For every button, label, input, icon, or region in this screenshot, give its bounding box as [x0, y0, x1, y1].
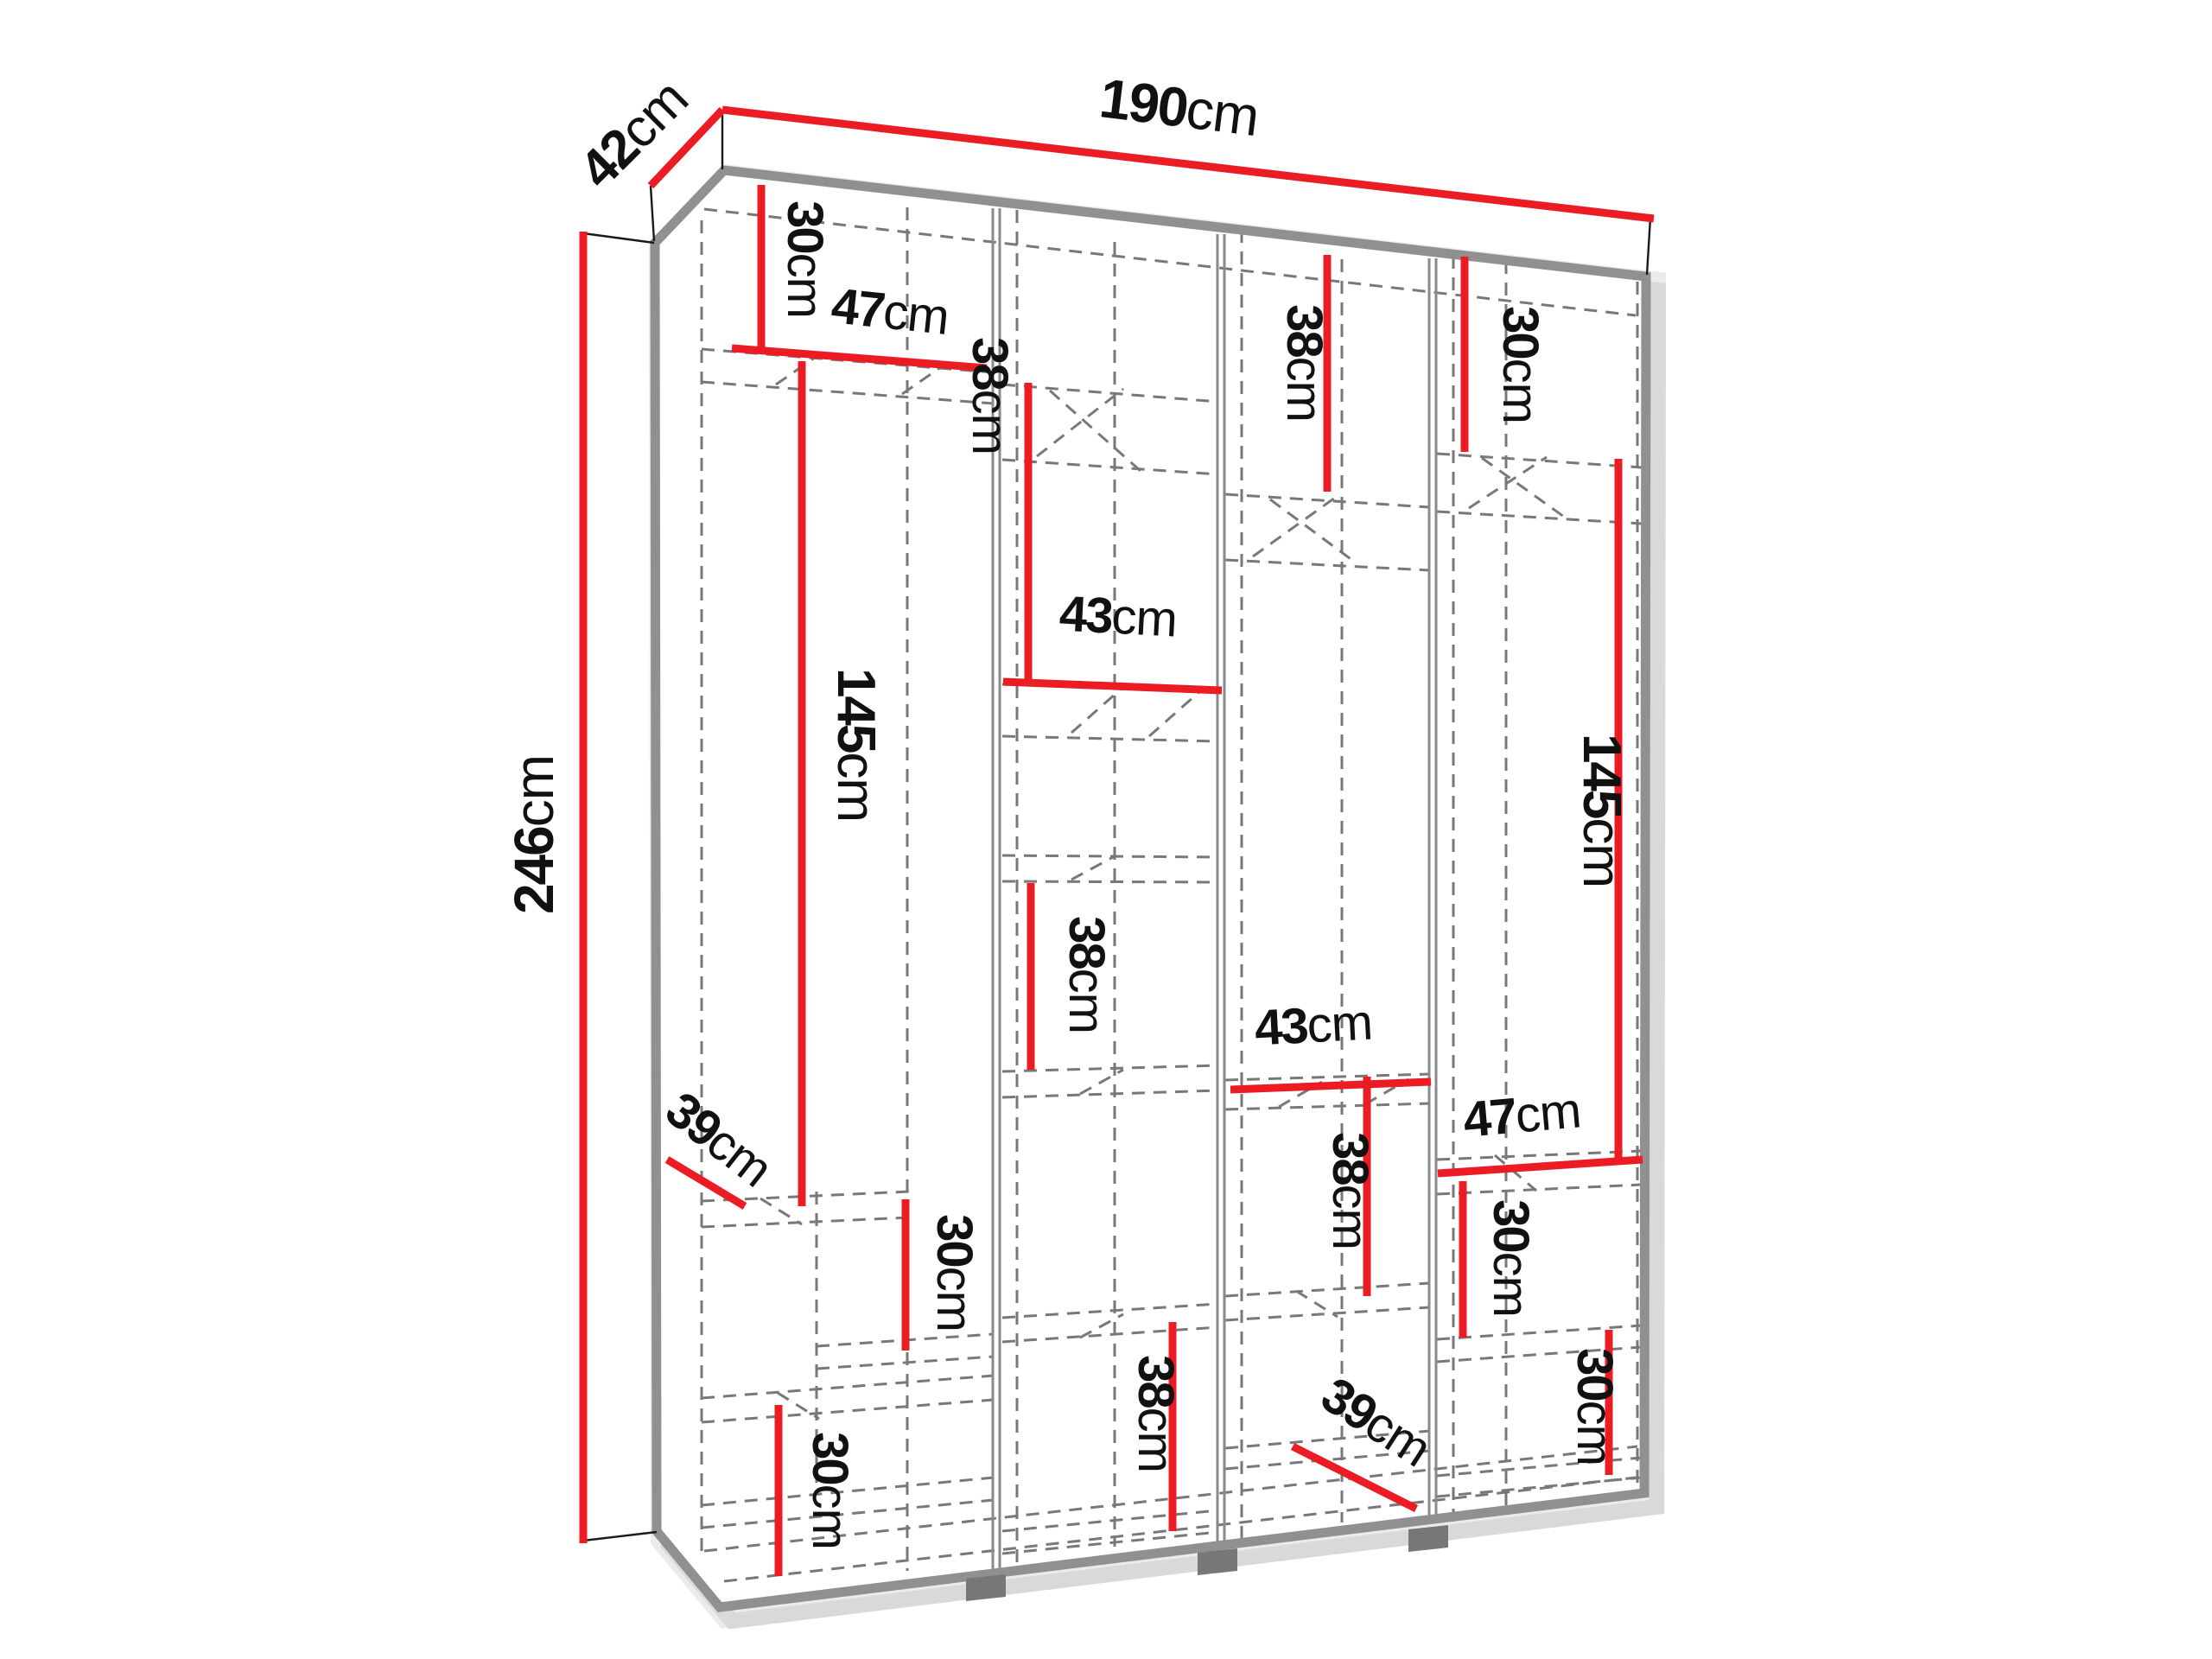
extension-line	[583, 1532, 657, 1541]
dimension-label: 190cm	[1096, 67, 1262, 148]
dimension-label: 30cm	[1567, 1348, 1623, 1465]
extension-line	[651, 186, 654, 241]
dimension-label: 38cm	[962, 337, 1018, 454]
plinth-foot	[1198, 1548, 1237, 1575]
dimension-label: 43cm	[1058, 586, 1178, 648]
extension-line	[583, 233, 654, 243]
dimension-label: 30cm	[1483, 1199, 1539, 1317]
dimension-label: 30cm	[802, 1432, 858, 1549]
dimension-label: 246cm	[503, 755, 565, 914]
plinth-foot	[966, 1574, 1006, 1601]
dimension-label: 38cm	[1276, 304, 1332, 422]
dimension-label: 145cm	[1572, 734, 1631, 887]
dimension-label: 42cm	[569, 69, 700, 200]
dimension-label: 38cm	[1322, 1132, 1378, 1249]
dimension-label: 30cm	[926, 1214, 982, 1332]
dimension-label: 43cm	[1253, 995, 1373, 1057]
extension-line	[1647, 218, 1650, 275]
wardrobe-dimension-diagram: 42cm190cm246cm30cm47cm145cm39cm30cm30cm3…	[0, 0, 2212, 1659]
dimension-label: 38cm	[1128, 1355, 1184, 1472]
dimension-label: 47cm	[1461, 1082, 1583, 1148]
dimension-label: 145cm	[826, 668, 886, 822]
diagram-canvas: 42cm190cm246cm30cm47cm145cm39cm30cm30cm3…	[0, 0, 2212, 1659]
dimension-label: 38cm	[1058, 916, 1115, 1033]
dimension-label: 30cm	[777, 200, 833, 318]
plinth-foot	[1408, 1525, 1448, 1552]
dimension-label: 30cm	[1492, 306, 1548, 423]
